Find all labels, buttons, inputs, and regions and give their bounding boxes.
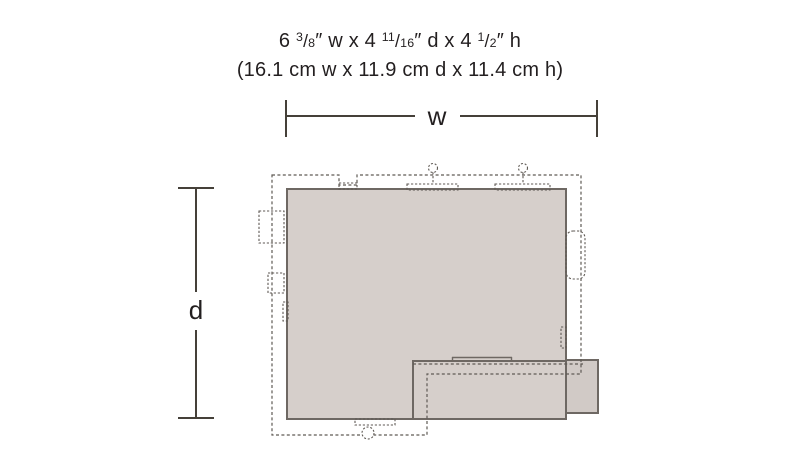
right-rounded-tab bbox=[566, 231, 585, 279]
building-footprint bbox=[287, 189, 598, 419]
width-label: w bbox=[427, 101, 447, 131]
footprint-diagram: w d bbox=[0, 0, 800, 473]
left-tab-small bbox=[268, 273, 284, 293]
depth-label: d bbox=[189, 295, 203, 325]
alignment-pin-bottom bbox=[362, 427, 374, 439]
left-tab-large bbox=[259, 211, 284, 243]
product-footprint-page: { "header": { "imperial": { "segments": … bbox=[0, 0, 800, 473]
depth-dimension: d bbox=[178, 188, 214, 418]
alignment-pin-top-1 bbox=[429, 164, 438, 173]
width-dimension: w bbox=[286, 100, 597, 137]
alignment-pin-top-2 bbox=[519, 164, 528, 173]
annex-extension-rect bbox=[566, 360, 598, 413]
